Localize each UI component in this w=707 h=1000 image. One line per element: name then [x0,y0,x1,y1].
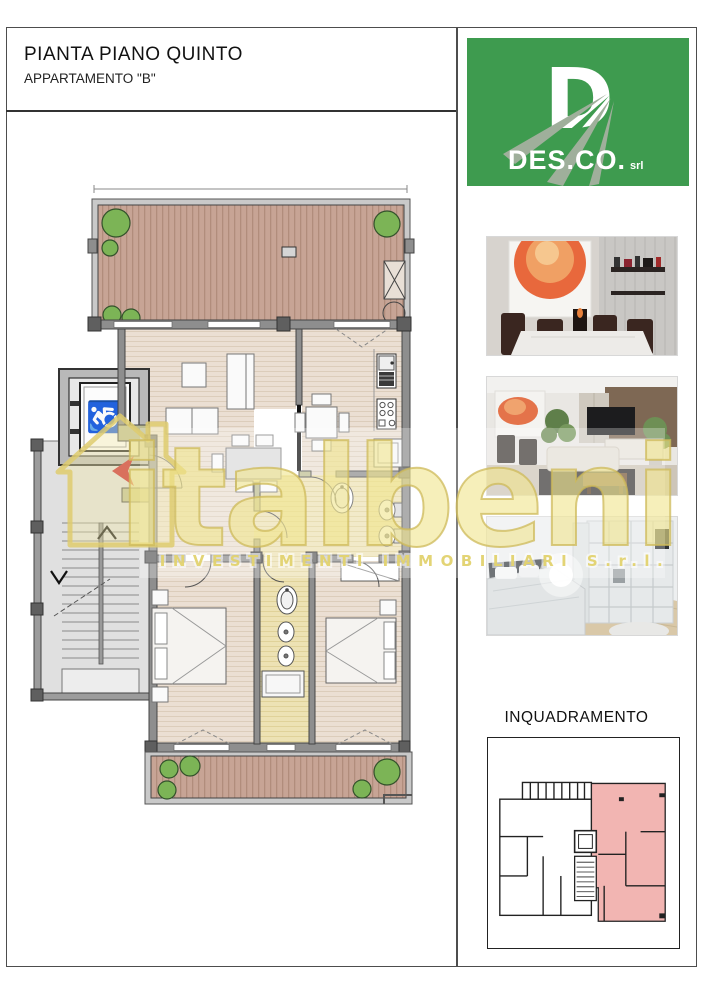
page-subtitle: APPARTAMENTO "B" [24,71,424,86]
inquadramento-title: INQUADRAMENTO [456,709,697,727]
title-block: PIANTA PIANO QUINTO APPARTAMENTO "B" [24,44,424,86]
document-page: PIANTA PIANO QUINTO APPARTAMENTO "B" [0,0,707,1000]
render-photo-dining [487,237,677,355]
terrace-bottom [145,752,412,804]
dimension-line [94,185,407,193]
pergola-box [384,261,405,299]
desco-logo-icon: D DES.CO. srl [467,38,689,186]
elevator: ♿ [59,369,149,465]
inquadramento-map [487,737,680,949]
logo-suffix: srl [630,160,643,172]
stove [377,399,396,429]
stairwell [31,439,149,701]
logo-company: DES.CO. [508,145,626,175]
render-photo-living [487,377,677,495]
column-divider [456,27,458,967]
wheelchair-icon: ♿ [87,398,122,435]
company-logo: D DES.CO. srl [460,31,696,193]
render-photo-bedroom [487,517,677,635]
terrace-top [88,199,414,327]
floor-plan: ♿ [6,111,456,968]
key-plan [500,782,665,921]
page-title: PIANTA PIANO QUINTO [24,44,424,66]
